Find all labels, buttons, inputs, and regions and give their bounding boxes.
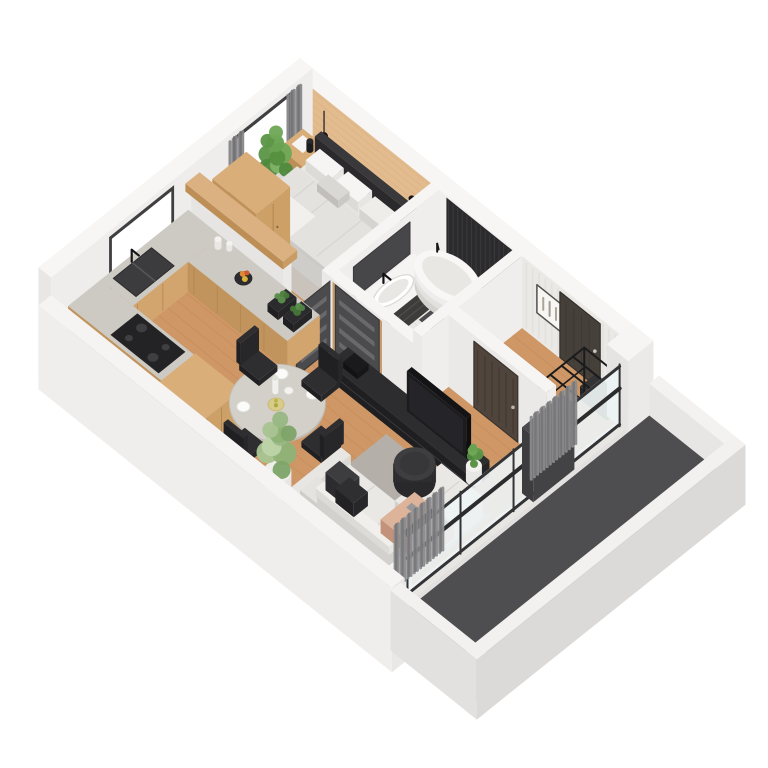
vase-flower (272, 375, 278, 381)
apartment-floorplan-render (0, 0, 768, 768)
fruit-yellow (242, 276, 248, 282)
wardrobe-handle-1 (276, 226, 278, 228)
fruit-red (244, 270, 249, 275)
entrance-door-handle (593, 349, 597, 353)
hall-door-handle (511, 406, 515, 410)
table-fruit-1 (274, 399, 278, 403)
floorplan-svg (0, 0, 768, 768)
table-fruit-2 (274, 403, 278, 407)
